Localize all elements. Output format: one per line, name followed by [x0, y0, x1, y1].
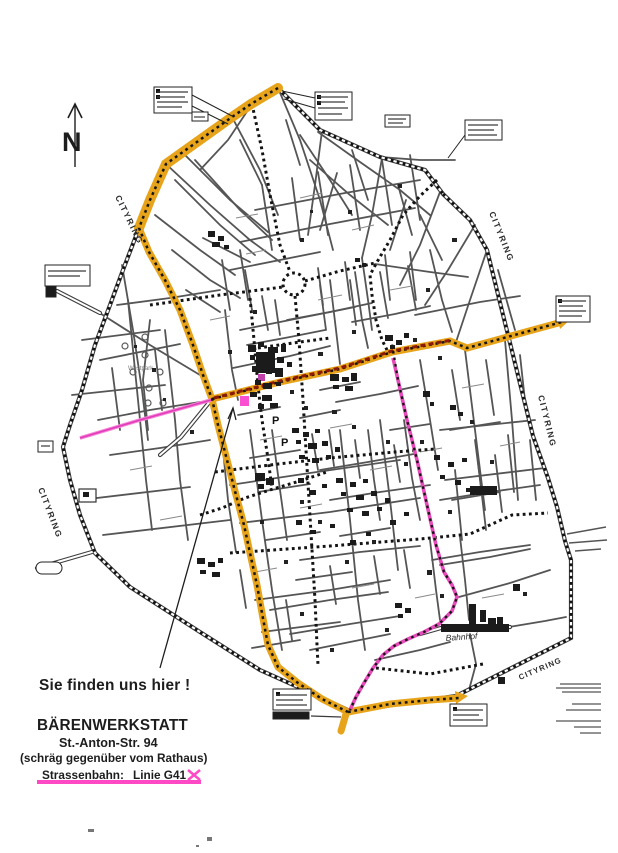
svg-text:P: P — [281, 437, 288, 449]
svg-text:BÄRENWERKSTATT: BÄRENWERKSTATT — [37, 717, 188, 734]
svg-text:N: N — [62, 127, 82, 157]
svg-text:St.-Anton-Str. 94: St.-Anton-Str. 94 — [59, 736, 158, 750]
svg-text:Sie finden uns hier !: Sie finden uns hier ! — [39, 677, 190, 694]
svg-text:(schräg gegenüber vom Rathaus): (schräg gegenüber vom Rathaus) — [20, 751, 208, 765]
svg-text:P: P — [272, 415, 279, 427]
svg-text:Linie G41: Linie G41 — [133, 768, 187, 782]
svg-text:Strassenbahn:: Strassenbahn: — [42, 768, 124, 782]
